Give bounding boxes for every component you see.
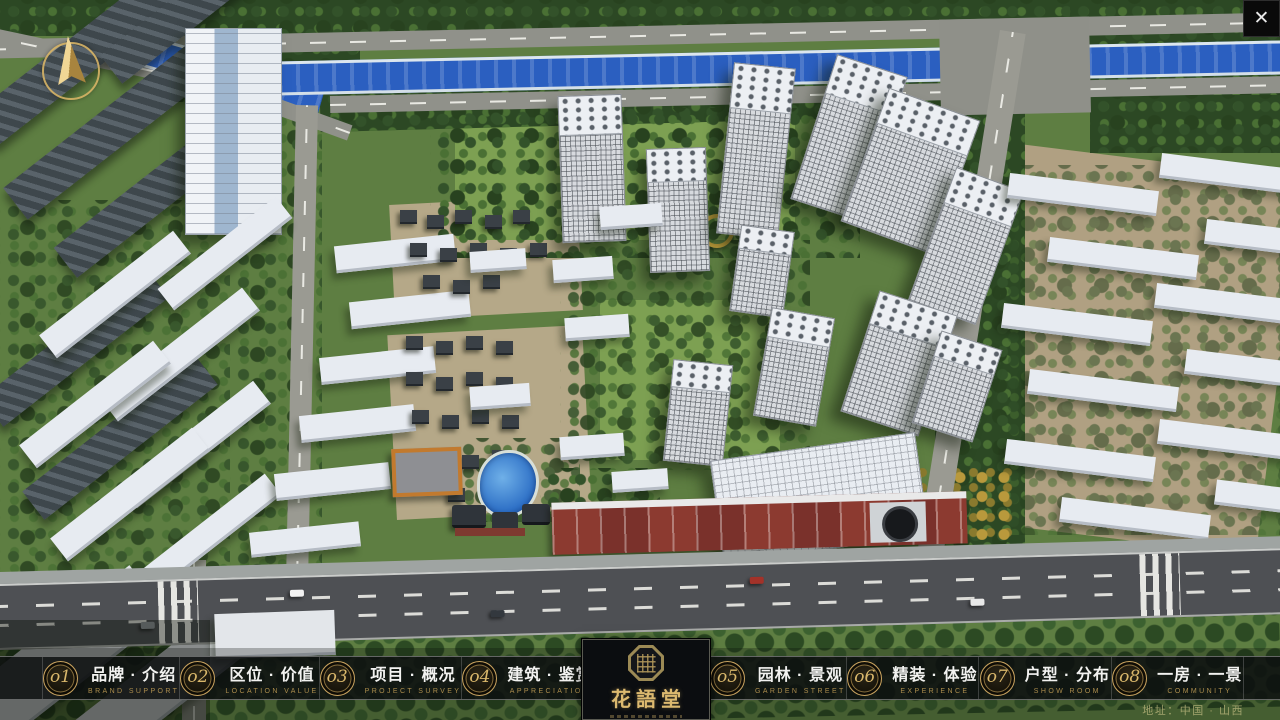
nav-number-badge: o8 bbox=[1112, 661, 1147, 696]
entrance-pavilion-roof bbox=[522, 504, 550, 525]
nav-label-zh: 一房 · 一景 bbox=[1157, 661, 1242, 685]
nav-number-badge: o1 bbox=[43, 661, 78, 696]
nav-label-zh: 品牌 · 介绍 bbox=[91, 661, 176, 685]
nav-number: o2 bbox=[187, 667, 208, 687]
building-clubhouse bbox=[391, 447, 463, 497]
nav-label-zh: 户型 · 分布 bbox=[1025, 661, 1110, 685]
project-logo-panel[interactable]: 花語堂 bbox=[582, 639, 710, 720]
nav-number: o5 bbox=[717, 667, 738, 687]
nav-spacer bbox=[0, 657, 43, 699]
nav-label-zh: 园林 · 景观 bbox=[758, 661, 843, 685]
nav-number: o8 bbox=[1119, 667, 1140, 687]
nav-number-badge: o2 bbox=[180, 661, 215, 696]
nav-label-zh: 区位 · 价值 bbox=[229, 661, 314, 685]
nav-number: o4 bbox=[469, 667, 490, 687]
nav-label-en: COMMUNITY bbox=[1167, 688, 1232, 695]
close-icon: ✕ bbox=[1254, 7, 1270, 29]
nav-number-badge: o3 bbox=[320, 661, 355, 696]
compass-north-indicator bbox=[40, 32, 102, 98]
building-slab bbox=[552, 256, 613, 283]
nav-label-en: PROJECT SURVEY bbox=[365, 688, 462, 695]
logo-seal-icon bbox=[628, 645, 664, 681]
nav-number-badge: o4 bbox=[462, 661, 497, 696]
tree-grove bbox=[1090, 95, 1280, 153]
nav-number: o7 bbox=[987, 667, 1008, 687]
nav-number: o1 bbox=[50, 667, 71, 687]
nav-number-badge: o7 bbox=[980, 661, 1015, 696]
entrance-wall bbox=[455, 528, 525, 536]
bottom-nav: o1 品牌 · 介绍 BRAND SUPPORT o2 区位 · 价值 LOCA… bbox=[0, 656, 1280, 700]
logo-seal-pattern bbox=[631, 648, 661, 678]
nav-number-badge: o6 bbox=[847, 661, 882, 696]
presentation-stage: ✕ o1 品牌 · 介绍 BRAND SUPPORT o2 区位 · 价值 LO… bbox=[0, 0, 1280, 720]
nav-number: o3 bbox=[327, 667, 348, 687]
commercial-street-shops bbox=[551, 491, 967, 555]
entrance-pavilion-roof bbox=[452, 505, 486, 528]
nav-label-zh: 项目 · 概况 bbox=[370, 661, 455, 685]
nav-item-garden-landscape[interactable]: o5 园林 · 景观 GARDEN STREET bbox=[710, 657, 847, 699]
building-tower bbox=[663, 359, 733, 467]
building-slab bbox=[559, 433, 624, 460]
nav-label-en: LOCATION VALUE bbox=[225, 688, 318, 695]
nav-label-zh: 精装 · 体验 bbox=[892, 661, 977, 685]
nav-number-badge: o5 bbox=[710, 661, 745, 696]
nav-item-project-survey[interactable]: o3 项目 · 概况 PROJECT SURVEY bbox=[320, 657, 463, 699]
logo-tagline-line bbox=[610, 715, 682, 718]
project-address: 地址：中国 · 山西 bbox=[1142, 702, 1244, 718]
close-button[interactable]: ✕ bbox=[1243, 0, 1280, 37]
nav-item-brand-intro[interactable]: o1 品牌 · 介绍 BRAND SUPPORT bbox=[43, 657, 180, 699]
nav-group-left: o1 品牌 · 介绍 BRAND SUPPORT o2 区位 · 价值 LOCA… bbox=[0, 656, 582, 700]
nav-label-en: BRAND SUPPORT bbox=[88, 688, 179, 695]
nav-label-en: EXPERIENCE bbox=[900, 688, 969, 695]
nav-label-en: SHOW ROOM bbox=[1034, 688, 1101, 695]
project-logo-name: 花語堂 bbox=[611, 683, 686, 712]
nav-group-right: o5 园林 · 景观 GARDEN STREET o6 精装 · 体验 EXPE… bbox=[710, 656, 1280, 700]
aerial-masterplan-render bbox=[0, 0, 1280, 720]
nav-item-architecture[interactable]: o4 建筑 · 鉴赏 APPRECIATION bbox=[462, 657, 593, 699]
nav-item-location-value[interactable]: o2 区位 · 价值 LOCATION VALUE bbox=[180, 657, 319, 699]
building-slab bbox=[611, 468, 668, 493]
nav-item-room-view[interactable]: o8 一房 · 一景 COMMUNITY bbox=[1112, 657, 1244, 699]
nav-item-floorplan-distribution[interactable]: o7 户型 · 分布 SHOW ROOM bbox=[979, 657, 1111, 699]
nav-item-interior-experience[interactable]: o6 精装 · 体验 EXPERIENCE bbox=[847, 657, 979, 699]
nav-label-en: APPRECIATION bbox=[510, 688, 590, 695]
nav-label-zh: 建筑 · 鉴赏 bbox=[507, 661, 592, 685]
nav-label-en: GARDEN STREET bbox=[755, 688, 846, 695]
building-slab bbox=[469, 248, 526, 273]
building-slab bbox=[599, 203, 662, 230]
building-slab bbox=[564, 314, 629, 341]
building-slab bbox=[469, 383, 530, 410]
nav-number: o6 bbox=[854, 667, 875, 687]
nav-spacer bbox=[1244, 657, 1280, 699]
